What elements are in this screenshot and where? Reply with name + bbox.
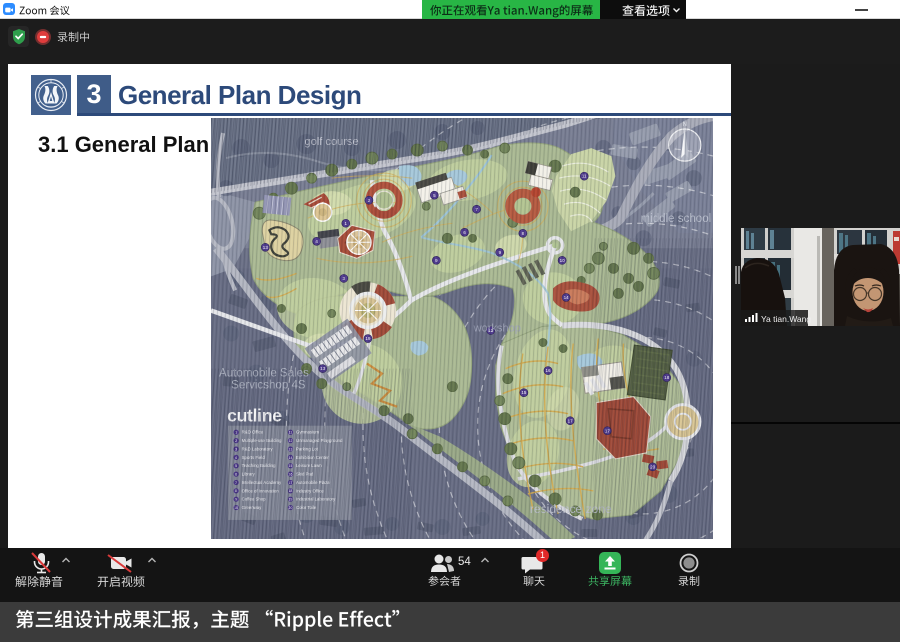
svg-text:Ya tian.Wang: Ya tian.Wang: [761, 314, 811, 324]
